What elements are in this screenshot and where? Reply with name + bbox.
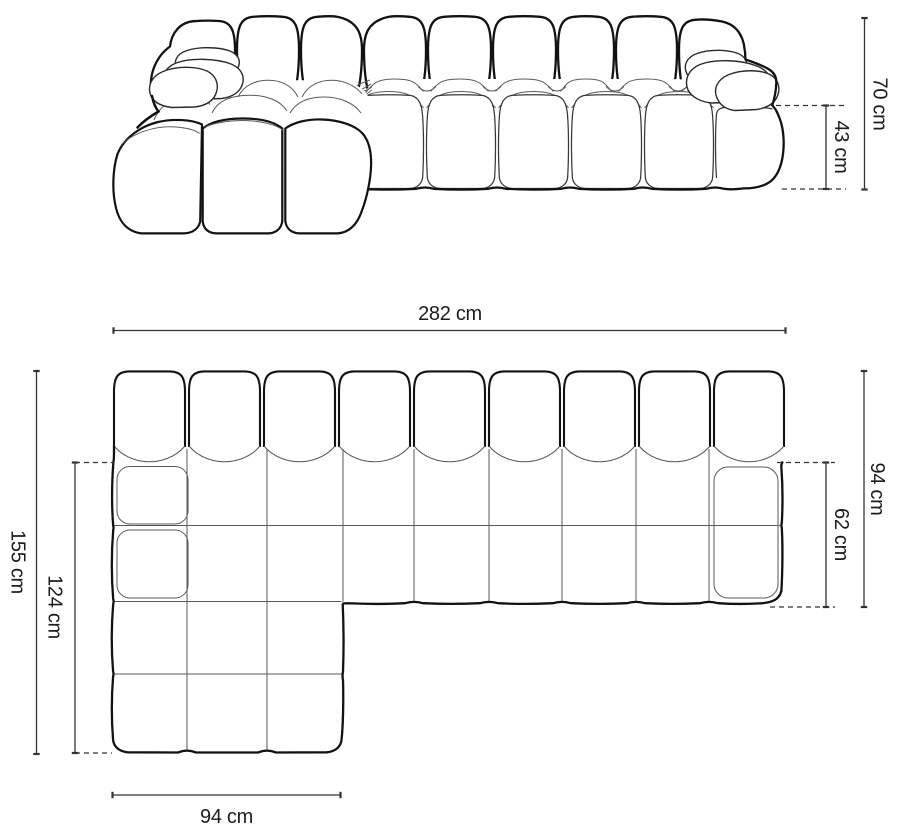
svg-text:70 cm: 70 cm bbox=[869, 78, 891, 131]
svg-text:282 cm: 282 cm bbox=[418, 303, 482, 325]
svg-text:124 cm: 124 cm bbox=[44, 575, 66, 639]
svg-text:62 cm: 62 cm bbox=[830, 508, 852, 561]
svg-text:155 cm: 155 cm bbox=[7, 530, 29, 594]
svg-text:94 cm: 94 cm bbox=[866, 463, 888, 516]
svg-text:43 cm: 43 cm bbox=[830, 121, 852, 174]
svg-text:94 cm: 94 cm bbox=[200, 806, 253, 828]
